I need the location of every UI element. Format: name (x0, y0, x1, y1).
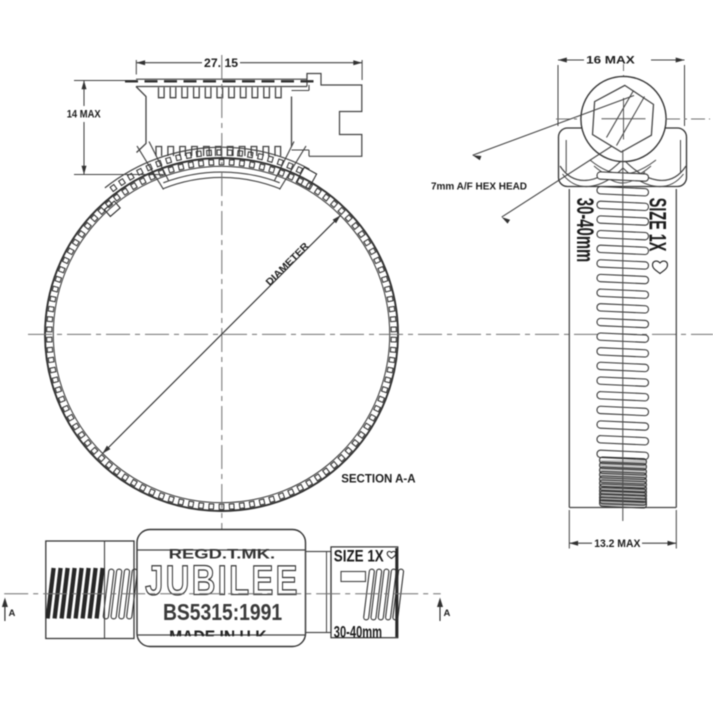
svg-text:13.2 MAX: 13.2 MAX (594, 538, 641, 550)
svg-text:16 MAX: 16 MAX (586, 55, 635, 67)
svg-text:A: A (9, 608, 16, 619)
svg-text:JUBILEE: JUBILEE (145, 557, 300, 604)
svg-text:30-40mm: 30-40mm (334, 623, 382, 642)
svg-text:SECTION A-A: SECTION A-A (341, 471, 415, 485)
svg-text:BS5315:1991: BS5315:1991 (163, 601, 282, 626)
svg-text:14 MAX: 14 MAX (67, 109, 102, 121)
svg-text:SIZE 1X: SIZE 1X (643, 198, 670, 252)
svg-text:SIZE 1X: SIZE 1X (334, 547, 385, 566)
svg-text:7mm A/F HEX HEAD: 7mm A/F HEX HEAD (431, 182, 527, 193)
svg-text:A: A (444, 608, 451, 619)
svg-text:27.: 27. (204, 56, 221, 70)
svg-text:15: 15 (225, 56, 239, 70)
svg-text:30-40mm: 30-40mm (571, 198, 597, 262)
